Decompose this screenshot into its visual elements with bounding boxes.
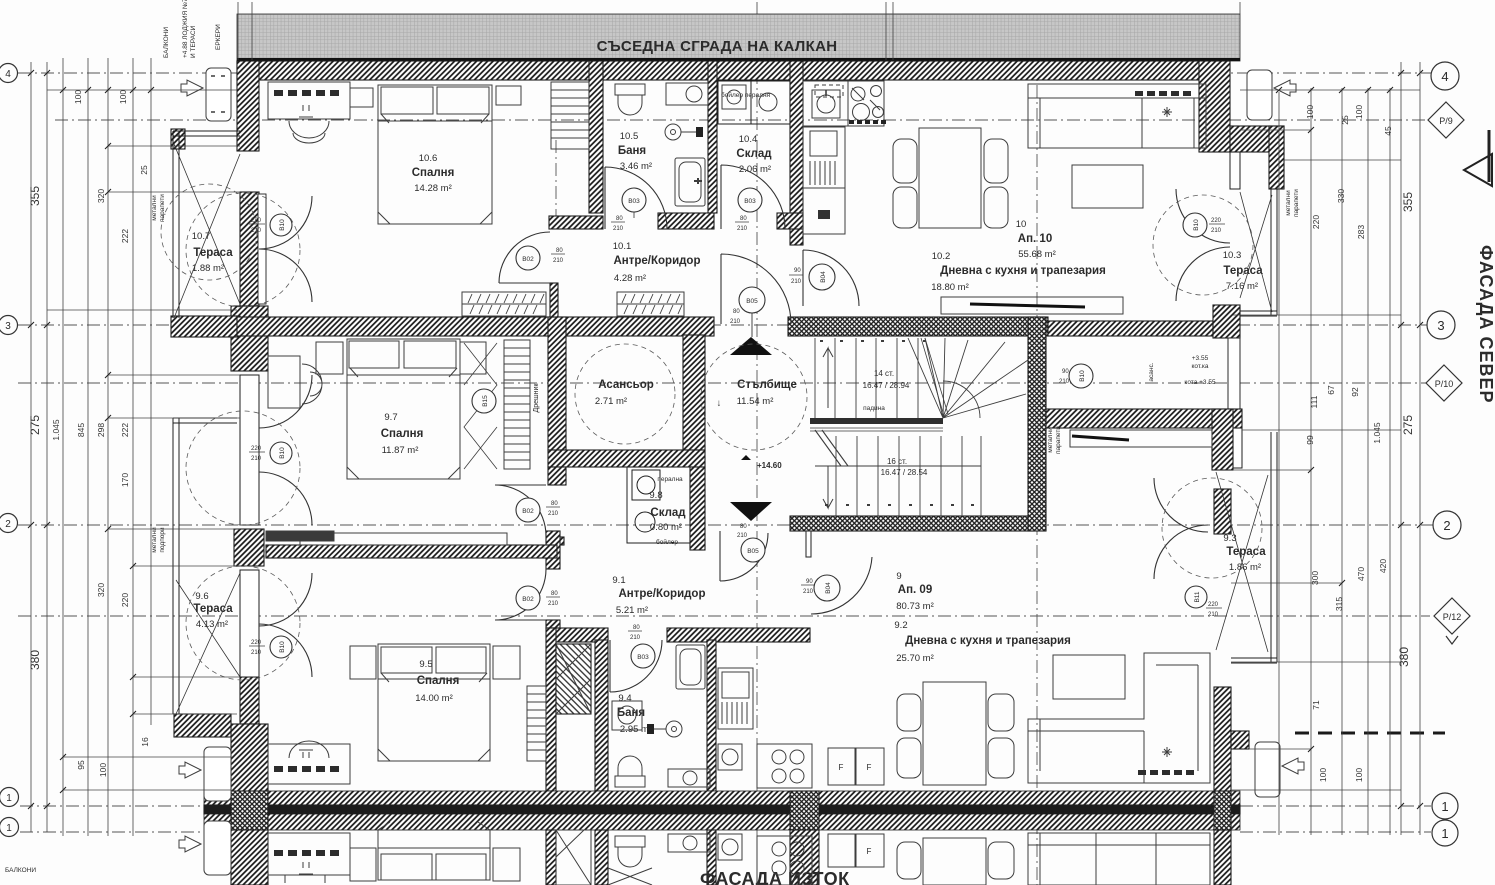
svg-text:1.045: 1.045: [1372, 422, 1382, 444]
svg-text:2.71 m²: 2.71 m²: [595, 396, 627, 407]
svg-text:355: 355: [1401, 192, 1415, 212]
svg-text:275: 275: [28, 415, 42, 435]
svg-text:9.7: 9.7: [384, 412, 397, 423]
svg-text:9.3: 9.3: [1223, 533, 1236, 544]
svg-text:+14.60: +14.60: [757, 461, 782, 470]
svg-text:B05: B05: [747, 548, 759, 555]
svg-text:1.045: 1.045: [51, 419, 61, 441]
svg-text:парапети: парапети: [1293, 189, 1300, 217]
svg-text:222: 222: [120, 423, 130, 437]
svg-text:B02: B02: [522, 256, 534, 263]
svg-text:90: 90: [794, 268, 801, 274]
svg-text:F: F: [839, 763, 844, 772]
svg-text:парапети: парапети: [1055, 426, 1062, 454]
svg-text:3: 3: [1437, 318, 1444, 333]
svg-text:10.1: 10.1: [613, 241, 632, 252]
svg-text:4.13 m²: 4.13 m²: [196, 619, 228, 630]
svg-text:10.5: 10.5: [620, 131, 639, 142]
svg-text:210: 210: [1059, 379, 1070, 385]
svg-text:283: 283: [1356, 225, 1366, 239]
svg-text:16.47 / 28.54: 16.47 / 28.54: [881, 468, 928, 477]
svg-text:4: 4: [5, 69, 11, 80]
svg-text:парапети: парапети: [159, 194, 166, 222]
svg-text:210: 210: [737, 226, 748, 232]
svg-text:320: 320: [96, 189, 106, 203]
svg-text:210: 210: [791, 279, 802, 285]
svg-text:B03: B03: [744, 198, 756, 205]
svg-text:55.68 m²: 55.68 m²: [1018, 249, 1056, 260]
svg-text:Асансьор: Асансьор: [598, 379, 654, 391]
svg-text:3: 3: [5, 321, 11, 332]
svg-text:B05: B05: [746, 298, 758, 305]
svg-text:220: 220: [1208, 602, 1219, 608]
svg-text:380: 380: [28, 650, 42, 670]
svg-text:9.1: 9.1: [612, 575, 625, 586]
svg-text:F: F: [867, 847, 872, 856]
svg-text:80: 80: [633, 625, 640, 631]
svg-text:Р/9: Р/9: [1439, 116, 1453, 126]
svg-text:метални: метални: [1047, 427, 1054, 453]
svg-text:210: 210: [803, 589, 814, 595]
svg-text:222: 222: [120, 229, 130, 243]
svg-text:315: 315: [1334, 597, 1344, 611]
svg-text:25: 25: [1340, 115, 1350, 125]
svg-text:100: 100: [1318, 768, 1328, 782]
svg-text:210: 210: [553, 258, 564, 264]
svg-text:B10: B10: [1193, 219, 1200, 231]
svg-text:80: 80: [551, 501, 558, 507]
svg-text:298: 298: [96, 423, 106, 437]
svg-text:100: 100: [1354, 105, 1364, 119]
svg-text:ФАСАДА СЕВЕР: ФАСАДА СЕВЕР: [1476, 245, 1495, 404]
svg-text:2: 2: [5, 519, 11, 530]
svg-text:Спалня: Спалня: [381, 428, 424, 440]
svg-text:210: 210: [548, 601, 559, 607]
svg-text:25: 25: [139, 165, 149, 175]
svg-text:80: 80: [616, 216, 623, 222]
svg-text:300: 300: [1310, 571, 1320, 585]
svg-text:11.87 m²: 11.87 m²: [382, 445, 419, 456]
svg-text:И ТЕРАСИ: И ТЕРАСИ: [190, 25, 197, 58]
svg-text:B10: B10: [279, 219, 286, 231]
svg-text:+4.88 ЛОДЖИЯ №7: +4.88 ЛОДЖИЯ №7: [182, 0, 189, 58]
svg-text:5.21 m²: 5.21 m²: [616, 605, 648, 616]
svg-text:90: 90: [1062, 369, 1069, 375]
svg-text:18.80 m²: 18.80 m²: [931, 282, 969, 293]
svg-text:1: 1: [1441, 826, 1448, 841]
svg-text:80: 80: [551, 591, 558, 597]
svg-text:1: 1: [6, 793, 12, 804]
svg-text:B03: B03: [628, 198, 640, 205]
svg-text:Дрешник: Дрешник: [533, 383, 540, 413]
svg-text:B15: B15: [482, 395, 489, 407]
svg-text:9: 9: [896, 571, 901, 582]
svg-text:9.2: 9.2: [894, 620, 907, 631]
svg-text:B10: B10: [279, 641, 286, 653]
svg-text:БАЛКОНИ: БАЛКОНИ: [5, 867, 36, 874]
svg-text:14.28 m²: 14.28 m²: [414, 183, 452, 194]
svg-text:100: 100: [73, 90, 83, 104]
svg-text:170: 170: [120, 473, 130, 487]
svg-text:Ап. 10: Ап. 10: [1018, 233, 1052, 245]
svg-text:14.00 m²: 14.00 m²: [415, 693, 453, 704]
svg-text:метални: метални: [151, 195, 158, 221]
svg-text:метални: метални: [1285, 190, 1292, 216]
svg-text:100: 100: [118, 90, 128, 104]
svg-text:перална: перална: [657, 476, 683, 483]
svg-text:67: 67: [1326, 385, 1336, 395]
svg-text:90: 90: [806, 579, 813, 585]
svg-text:СЪСЕДНА СГРАДА НА КАЛКАН: СЪСЕДНА СГРАДА НА КАЛКАН: [597, 38, 838, 55]
svg-text:210: 210: [251, 650, 262, 656]
svg-text:9.6: 9.6: [195, 591, 208, 602]
svg-text:Склад: Склад: [736, 148, 772, 160]
svg-text:Ап. 09: Ап. 09: [898, 584, 932, 596]
svg-text:111: 111: [1309, 395, 1319, 408]
svg-text:B03: B03: [637, 654, 649, 661]
svg-text:Тераса: Тераса: [193, 247, 233, 259]
svg-text:ФАСАДА ИЗТОК: ФАСАДА ИЗТОК: [700, 869, 850, 885]
svg-text:220: 220: [120, 593, 130, 607]
svg-text:↓: ↓: [717, 398, 722, 409]
svg-text:Спалня: Спалня: [417, 675, 460, 687]
svg-text:92: 92: [1350, 387, 1360, 397]
svg-text:бойлер: бойлер: [656, 538, 678, 546]
svg-text:210: 210: [1208, 612, 1219, 618]
svg-text:470: 470: [1356, 567, 1366, 581]
svg-text:95: 95: [76, 760, 86, 770]
svg-text:320: 320: [96, 583, 106, 597]
svg-text:Антре/Коридор: Антре/Коридор: [619, 588, 706, 600]
svg-text:11.54 m²: 11.54 m²: [737, 396, 774, 407]
svg-text:ЕРКЕРИ: ЕРКЕРИ: [215, 24, 222, 50]
svg-text:B04: B04: [820, 271, 827, 283]
svg-text:9.5: 9.5: [419, 659, 432, 670]
svg-text:Антре/Коридор: Антре/Коридор: [614, 255, 701, 267]
svg-text:падина: падина: [863, 405, 885, 412]
svg-text:+3.55: +3.55: [1192, 355, 1209, 362]
svg-text:БАЛКОНИ: БАЛКОНИ: [163, 27, 170, 58]
svg-text:Склад: Склад: [650, 507, 686, 519]
svg-text:1.88 m²: 1.88 m²: [192, 263, 224, 274]
svg-text:B02: B02: [522, 596, 534, 603]
svg-text:Р/12: Р/12: [1443, 612, 1462, 622]
svg-text:16: 16: [140, 737, 150, 747]
svg-text:B10: B10: [1079, 370, 1086, 382]
svg-text:210: 210: [730, 319, 741, 325]
svg-text:9.8: 9.8: [649, 490, 662, 501]
svg-text:14 ст.: 14 ст.: [874, 369, 894, 378]
svg-text:420: 420: [1378, 559, 1388, 573]
svg-text:B02: B02: [522, 508, 534, 515]
svg-text:16.47 / 28.94: 16.47 / 28.94: [863, 381, 910, 390]
svg-text:16 ст.: 16 ст.: [887, 457, 907, 466]
svg-text:0.80 m²: 0.80 m²: [650, 522, 682, 533]
svg-text:80: 80: [556, 248, 563, 254]
svg-text:10.2: 10.2: [932, 251, 951, 262]
svg-text:метални: метални: [151, 527, 158, 553]
svg-text:210: 210: [630, 635, 641, 641]
svg-text:кота +3.55: кота +3.55: [1184, 379, 1216, 386]
svg-text:210: 210: [251, 456, 262, 462]
svg-text:1: 1: [6, 823, 12, 834]
svg-text:220: 220: [251, 446, 262, 452]
svg-text:220: 220: [1311, 215, 1321, 229]
svg-text:210: 210: [1211, 228, 1222, 234]
svg-text:220: 220: [1211, 218, 1222, 224]
svg-text:F: F: [867, 763, 872, 772]
svg-text:210: 210: [251, 228, 262, 234]
svg-text:210: 210: [737, 533, 748, 539]
svg-text:Тераса: Тераса: [1223, 265, 1263, 277]
svg-text:355: 355: [28, 186, 42, 206]
svg-text:B10: B10: [279, 447, 286, 459]
svg-text:10.4: 10.4: [739, 134, 758, 145]
svg-text:Спалня: Спалня: [412, 167, 455, 179]
svg-text:4.28 m²: 4.28 m²: [614, 273, 646, 284]
svg-text:275: 275: [1401, 415, 1415, 435]
svg-text:100: 100: [98, 763, 108, 777]
svg-text:Стълбище: Стълбище: [737, 379, 797, 391]
svg-text:подпори: подпори: [159, 527, 166, 553]
svg-text:Дневна с кухня и трапезария: Дневна с кухня и трапезария: [905, 635, 1071, 647]
svg-text:100: 100: [1305, 105, 1315, 119]
svg-text:Дневна с кухня и трапезария: Дневна с кухня и трапезария: [940, 265, 1106, 277]
svg-text:45: 45: [1383, 126, 1393, 136]
svg-text:220: 220: [251, 640, 262, 646]
svg-text:10.7: 10.7: [192, 231, 211, 242]
svg-text:330: 330: [1336, 189, 1346, 203]
svg-text:2: 2: [1443, 518, 1450, 533]
svg-text:845: 845: [76, 423, 86, 437]
svg-text:210: 210: [613, 226, 624, 232]
svg-text:9.4: 9.4: [618, 693, 631, 704]
svg-text:1: 1: [1441, 799, 1448, 814]
svg-text:380: 380: [1397, 647, 1411, 667]
svg-text:10: 10: [1016, 219, 1027, 230]
svg-text:80: 80: [740, 524, 747, 530]
svg-text:100: 100: [1354, 768, 1364, 782]
svg-text:10.3: 10.3: [1223, 250, 1242, 261]
svg-text:B04: B04: [825, 582, 832, 594]
svg-text:80.73 m²: 80.73 m²: [896, 601, 934, 612]
svg-text:Баня: Баня: [618, 145, 646, 157]
svg-text:4: 4: [1441, 69, 1448, 84]
svg-text:25.70 m²: 25.70 m²: [896, 653, 934, 664]
svg-text:Р/10: Р/10: [1435, 379, 1454, 389]
svg-text:99: 99: [1305, 435, 1315, 445]
svg-text:Тераса: Тераса: [193, 603, 233, 615]
svg-text:210: 210: [548, 511, 559, 517]
svg-text:асанс.: асанс.: [1148, 362, 1155, 381]
svg-text:10.6: 10.6: [419, 153, 438, 164]
svg-text:B11: B11: [1194, 591, 1201, 602]
svg-text:71: 71: [1311, 700, 1321, 710]
svg-text:80: 80: [740, 216, 747, 222]
svg-text:кот.ка: кот.ка: [1191, 363, 1208, 370]
svg-text:80: 80: [733, 309, 740, 315]
